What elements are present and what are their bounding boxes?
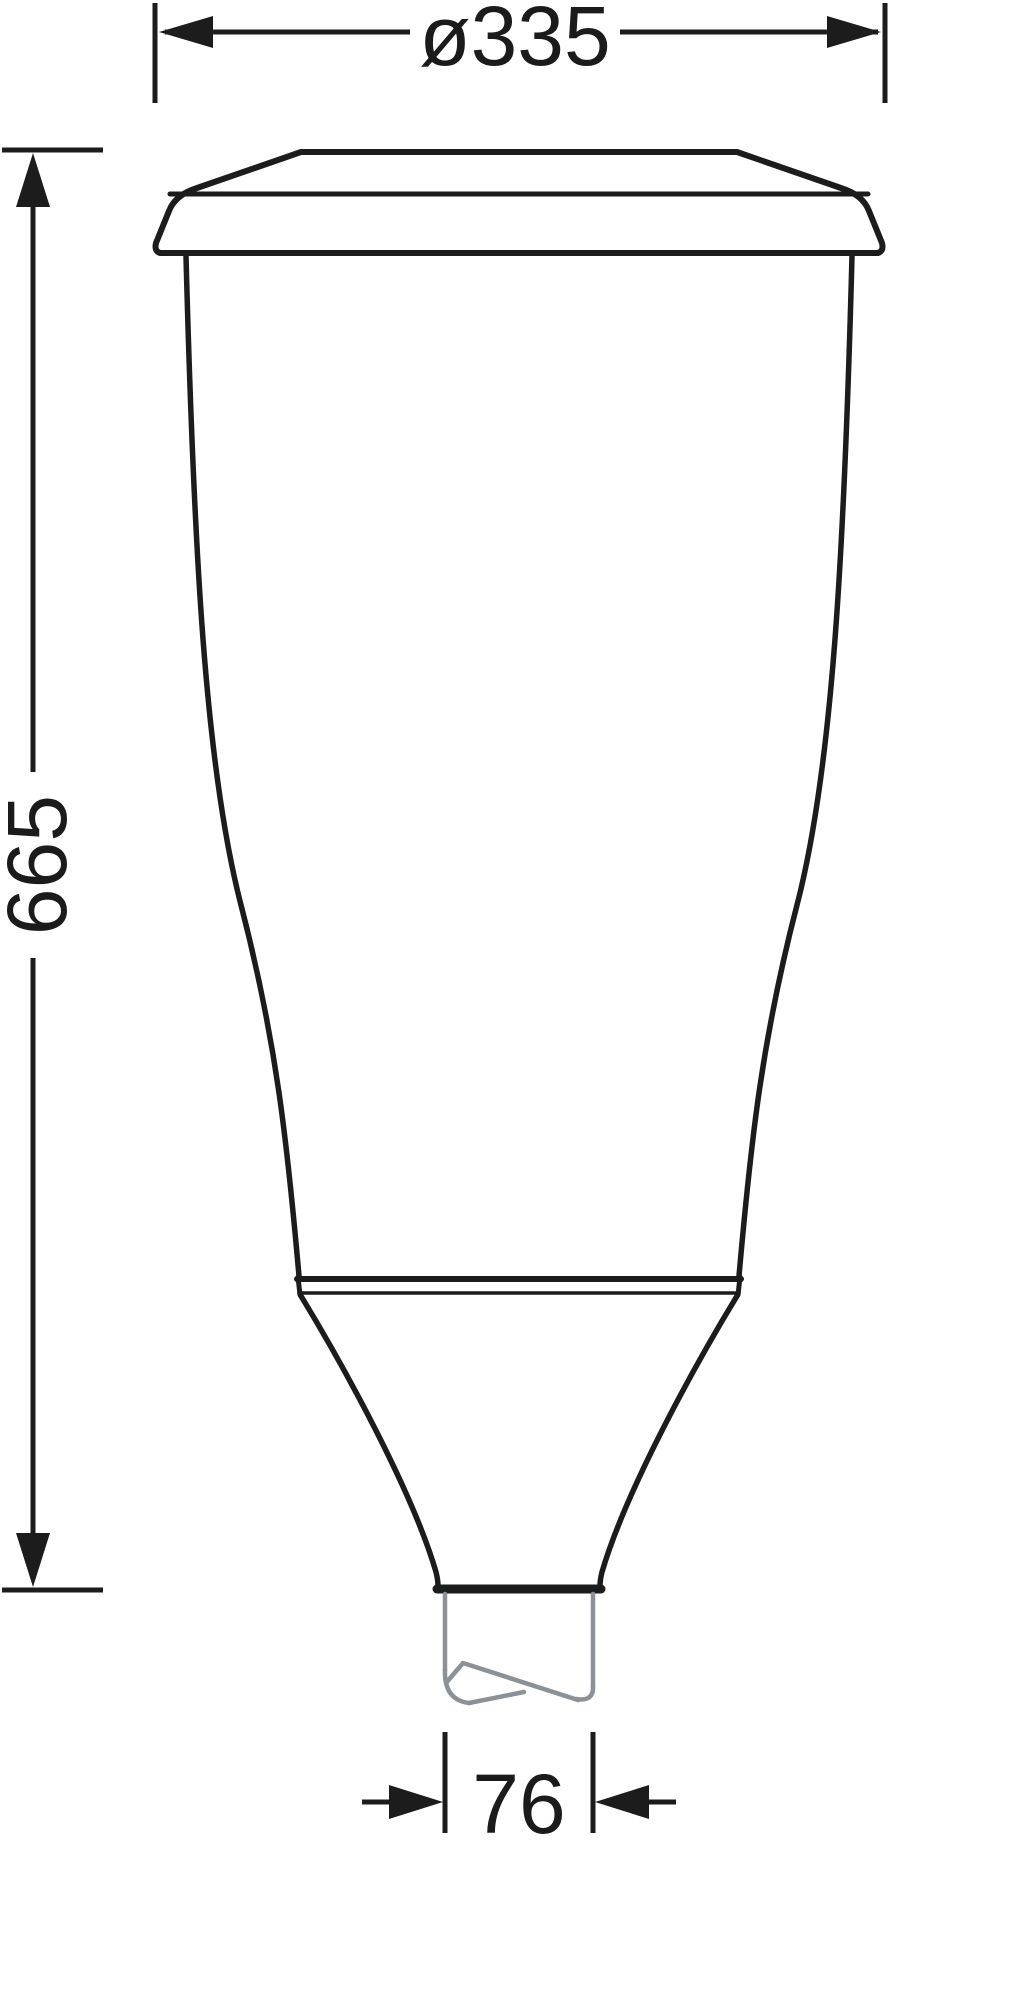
luminaire-outline: [156, 152, 883, 1589]
spigot-left-foot: [445, 1670, 469, 1703]
arrowhead-left-icon: [595, 1785, 649, 1819]
arrowhead-up-icon: [16, 153, 50, 207]
cap: [156, 152, 883, 253]
funnel-left-edge: [301, 1296, 438, 1586]
body-left-edge: [186, 256, 299, 1276]
body-right-edge: [739, 256, 852, 1276]
drawing-canvas: ø335 665: [0, 0, 1009, 2000]
band-left-side: [298, 1277, 300, 1295]
arrowhead-left-icon: [159, 16, 213, 48]
band-right-side: [738, 1277, 740, 1295]
spigot-break-lower-line: [469, 1692, 524, 1703]
dimension-label-overall-height: 665: [0, 795, 84, 935]
funnel-right-edge: [600, 1296, 737, 1586]
spigot-right-foot: [576, 1686, 593, 1699]
dimension-top-diameter: ø335: [155, 0, 885, 103]
dimension-spigot-diameter: 76: [362, 1732, 676, 1851]
arrowhead-right-icon: [827, 16, 881, 48]
arrowhead-down-icon: [16, 1533, 50, 1587]
dimension-label-spigot-diameter: 76: [472, 1757, 565, 1851]
dimension-overall-height: 665: [0, 150, 103, 1590]
dimension-label-top-diameter: ø335: [419, 0, 610, 83]
pole-spigot: [445, 1594, 593, 1703]
arrowhead-right-icon: [389, 1785, 443, 1819]
dimension-drawing: ø335 665: [0, 0, 1009, 2000]
